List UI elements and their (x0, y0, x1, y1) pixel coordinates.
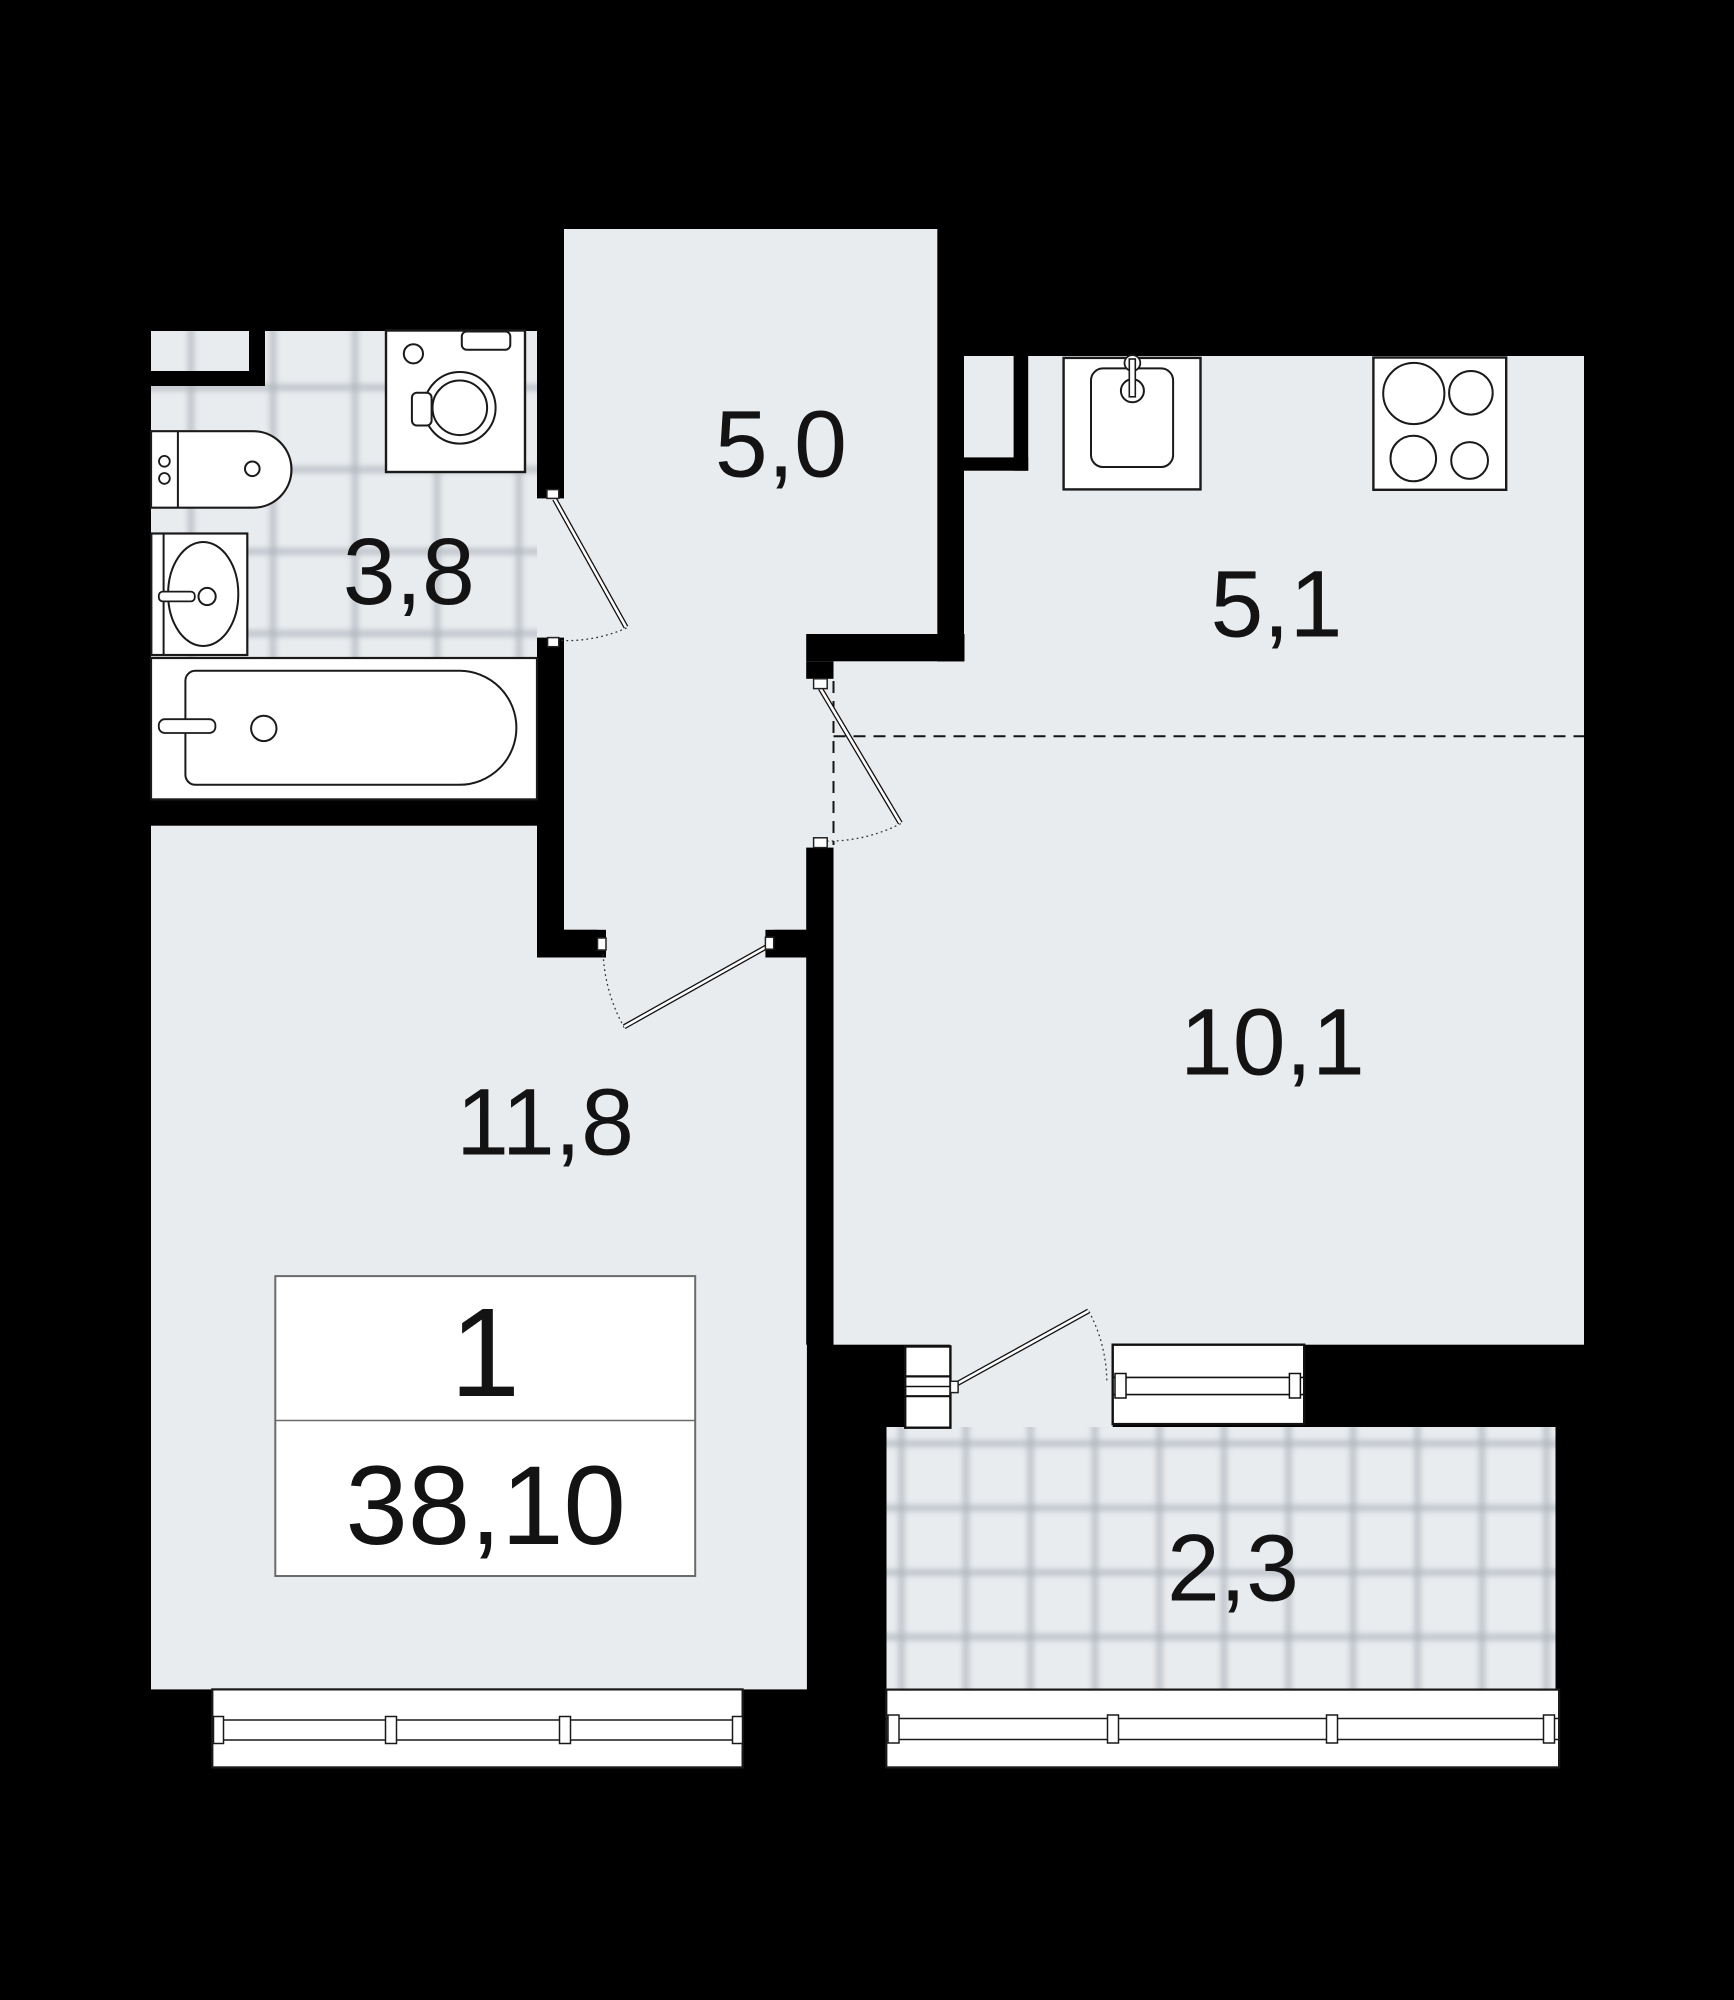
svg-text:38,10: 38,10 (346, 1443, 626, 1568)
svg-text:2,3: 2,3 (1167, 1516, 1299, 1622)
svg-text:10,1: 10,1 (1180, 990, 1365, 1096)
svg-text:5,1: 5,1 (1210, 551, 1342, 657)
svg-text:3,8: 3,8 (343, 519, 475, 625)
svg-text:5,0: 5,0 (715, 391, 847, 497)
svg-text:1: 1 (450, 1282, 520, 1423)
svg-text:11,8: 11,8 (456, 1070, 634, 1176)
